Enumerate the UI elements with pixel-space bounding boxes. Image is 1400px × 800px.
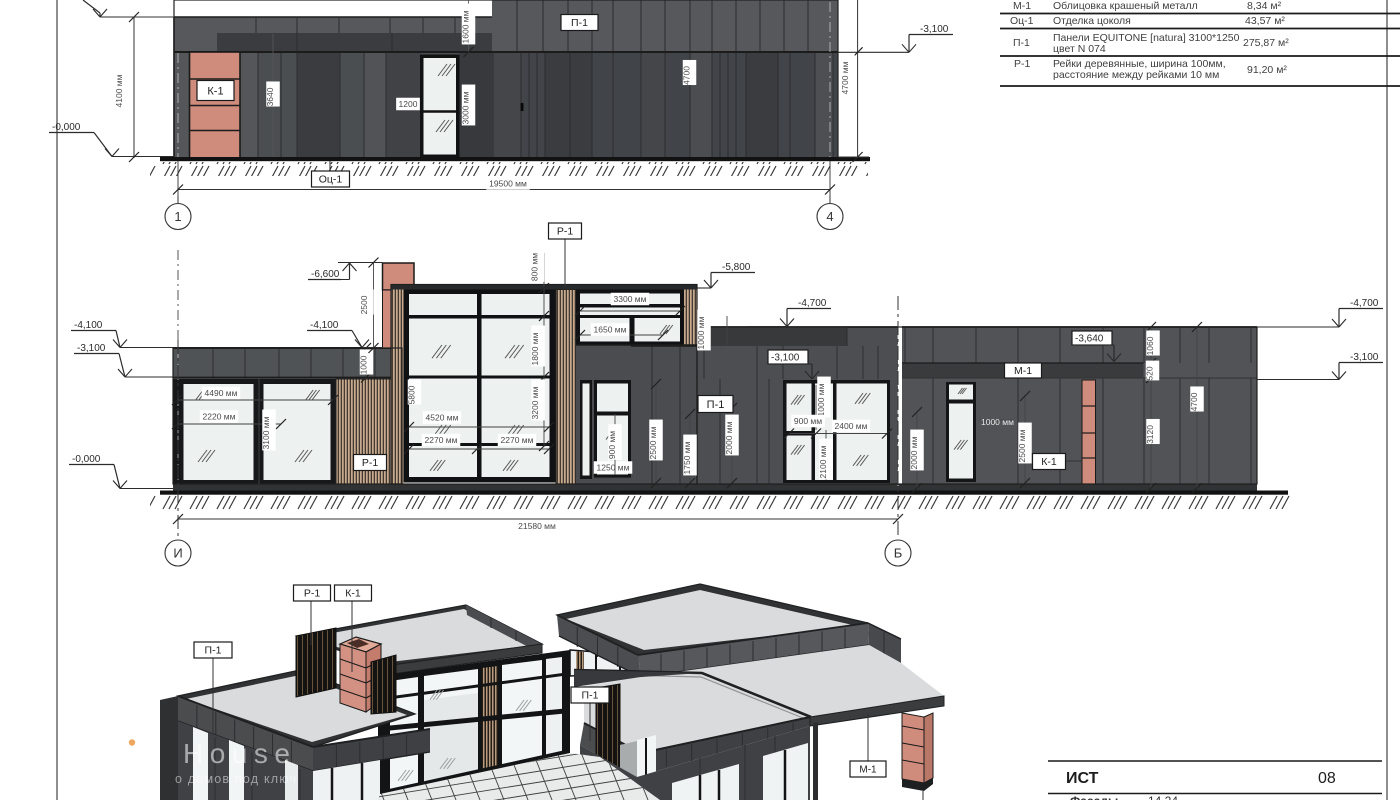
svg-text:4490 мм: 4490 мм xyxy=(205,388,238,398)
svg-text:Р-1: Р-1 xyxy=(304,588,321,600)
svg-text:4700: 4700 xyxy=(682,66,692,85)
svg-text:Оц-1: Оц-1 xyxy=(1010,15,1034,27)
svg-text:П-1: П-1 xyxy=(205,645,222,657)
svg-text:П-1: П-1 xyxy=(707,399,725,411)
svg-text:2100 мм: 2100 мм xyxy=(818,445,828,478)
svg-text:-6,600: -6,600 xyxy=(311,269,340,280)
svg-text:П-1: П-1 xyxy=(1013,37,1030,49)
svg-text:-4,100: -4,100 xyxy=(74,320,103,331)
svg-text:2270 мм: 2270 мм xyxy=(501,435,534,445)
svg-text:1000 мм: 1000 мм xyxy=(696,316,706,349)
svg-text:К-1: К-1 xyxy=(207,85,223,97)
svg-text:19500 мм: 19500 мм xyxy=(489,178,527,188)
svg-text:Отделка цоколя: Отделка цоколя xyxy=(1053,15,1131,27)
svg-text:И: И xyxy=(173,546,182,561)
svg-text:4520 мм: 4520 мм xyxy=(426,412,459,422)
svg-text:1600 мм: 1600 мм xyxy=(461,10,471,43)
svg-text:Оц-1: Оц-1 xyxy=(319,174,343,186)
svg-text:1750 мм: 1750 мм xyxy=(682,441,692,474)
svg-text:14.24: 14.24 xyxy=(1148,794,1178,800)
svg-text:-4,700: -4,700 xyxy=(798,298,827,309)
svg-text:П-1: П-1 xyxy=(582,690,599,702)
svg-text:2000 мм: 2000 мм xyxy=(909,436,919,469)
svg-text:1200: 1200 xyxy=(399,99,418,109)
svg-text:цвет N 074: цвет N 074 xyxy=(1053,43,1106,55)
svg-text:08: 08 xyxy=(1318,770,1336,787)
svg-text:900 мм: 900 мм xyxy=(607,431,617,459)
svg-text:8,34 м²: 8,34 м² xyxy=(1247,0,1282,12)
svg-text:1000 мм: 1000 мм xyxy=(816,383,826,416)
svg-text:4700 мм: 4700 мм xyxy=(840,61,850,94)
svg-text:-4,700: -4,700 xyxy=(1350,298,1379,309)
svg-text:1: 1 xyxy=(174,209,181,224)
svg-text:-3,100: -3,100 xyxy=(920,24,949,35)
svg-text:3640: 3640 xyxy=(265,87,275,106)
svg-text:1800 мм: 1800 мм xyxy=(530,332,540,365)
svg-text:5800: 5800 xyxy=(407,385,417,404)
svg-text:Р-1: Р-1 xyxy=(362,457,379,469)
svg-text:4700: 4700 xyxy=(1189,392,1199,411)
svg-text:3300 мм: 3300 мм xyxy=(614,294,647,304)
svg-text:91,20 м²: 91,20 м² xyxy=(1247,64,1287,76)
svg-text:Облицовка крашеный металл: Облицовка крашеный металл xyxy=(1053,0,1198,12)
svg-text:275,87 м²: 275,87 м² xyxy=(1243,37,1289,49)
svg-text:К-1: К-1 xyxy=(345,588,361,600)
svg-text:М-1: М-1 xyxy=(1013,0,1031,12)
svg-text:3000 мм: 3000 мм xyxy=(461,91,471,124)
svg-text:4: 4 xyxy=(826,209,833,224)
svg-text:2500 мм: 2500 мм xyxy=(648,426,658,459)
svg-text:1250 мм: 1250 мм xyxy=(597,462,630,472)
svg-text:3100 мм: 3100 мм xyxy=(261,416,271,449)
svg-text:2400 мм: 2400 мм xyxy=(835,421,868,431)
svg-text:520: 520 xyxy=(1145,366,1155,380)
svg-text:о домов под ключ: о домов под ключ xyxy=(175,772,297,786)
svg-text:Р-1: Р-1 xyxy=(1014,58,1031,70)
svg-text:К-1: К-1 xyxy=(1041,456,1057,468)
svg-text:2500: 2500 xyxy=(359,295,369,314)
svg-text:Фасады: Фасады xyxy=(1070,794,1118,800)
svg-text:1000 мм: 1000 мм xyxy=(981,417,1014,427)
svg-text:П-1: П-1 xyxy=(571,17,588,29)
svg-text:Р-1: Р-1 xyxy=(557,226,574,238)
svg-text:2270 мм: 2270 мм xyxy=(425,435,458,445)
svg-text:House: House xyxy=(183,738,296,769)
svg-text:1000: 1000 xyxy=(359,355,369,374)
svg-text:1650 мм: 1650 мм xyxy=(594,324,627,334)
svg-text:3200 мм: 3200 мм xyxy=(530,386,540,419)
svg-text:3120: 3120 xyxy=(1145,425,1155,444)
svg-text:2500 мм: 2500 мм xyxy=(1017,429,1027,462)
svg-text:-3,100: -3,100 xyxy=(77,343,106,354)
svg-text:21580 мм: 21580 мм xyxy=(518,521,556,531)
svg-text:800 мм: 800 мм xyxy=(530,253,540,281)
svg-text:расстояние между рейками 10 мм: расстояние между рейками 10 мм xyxy=(1053,69,1219,81)
svg-text:4100 мм: 4100 мм xyxy=(114,74,124,107)
svg-text:-0,000: -0,000 xyxy=(52,122,81,133)
svg-text:М-1: М-1 xyxy=(859,765,877,776)
svg-text:1060: 1060 xyxy=(1145,336,1155,355)
svg-text:-3,100: -3,100 xyxy=(771,353,800,364)
svg-text:2000 мм: 2000 мм xyxy=(724,421,734,454)
svg-text:-3,640: -3,640 xyxy=(1075,334,1104,345)
svg-text:-0,000: -0,000 xyxy=(72,454,101,465)
svg-text:-3,100: -3,100 xyxy=(1350,352,1379,363)
svg-text:-5,800: -5,800 xyxy=(722,262,751,273)
svg-text:43,57 м²: 43,57 м² xyxy=(1245,15,1285,27)
svg-text:Б: Б xyxy=(894,546,903,561)
svg-text:ИСТ: ИСТ xyxy=(1066,770,1099,787)
svg-text:М-1: М-1 xyxy=(1014,365,1032,377)
svg-text:900 мм: 900 мм xyxy=(794,416,822,426)
svg-text:2220 мм: 2220 мм xyxy=(203,411,236,421)
svg-text:-4,100: -4,100 xyxy=(310,320,339,331)
